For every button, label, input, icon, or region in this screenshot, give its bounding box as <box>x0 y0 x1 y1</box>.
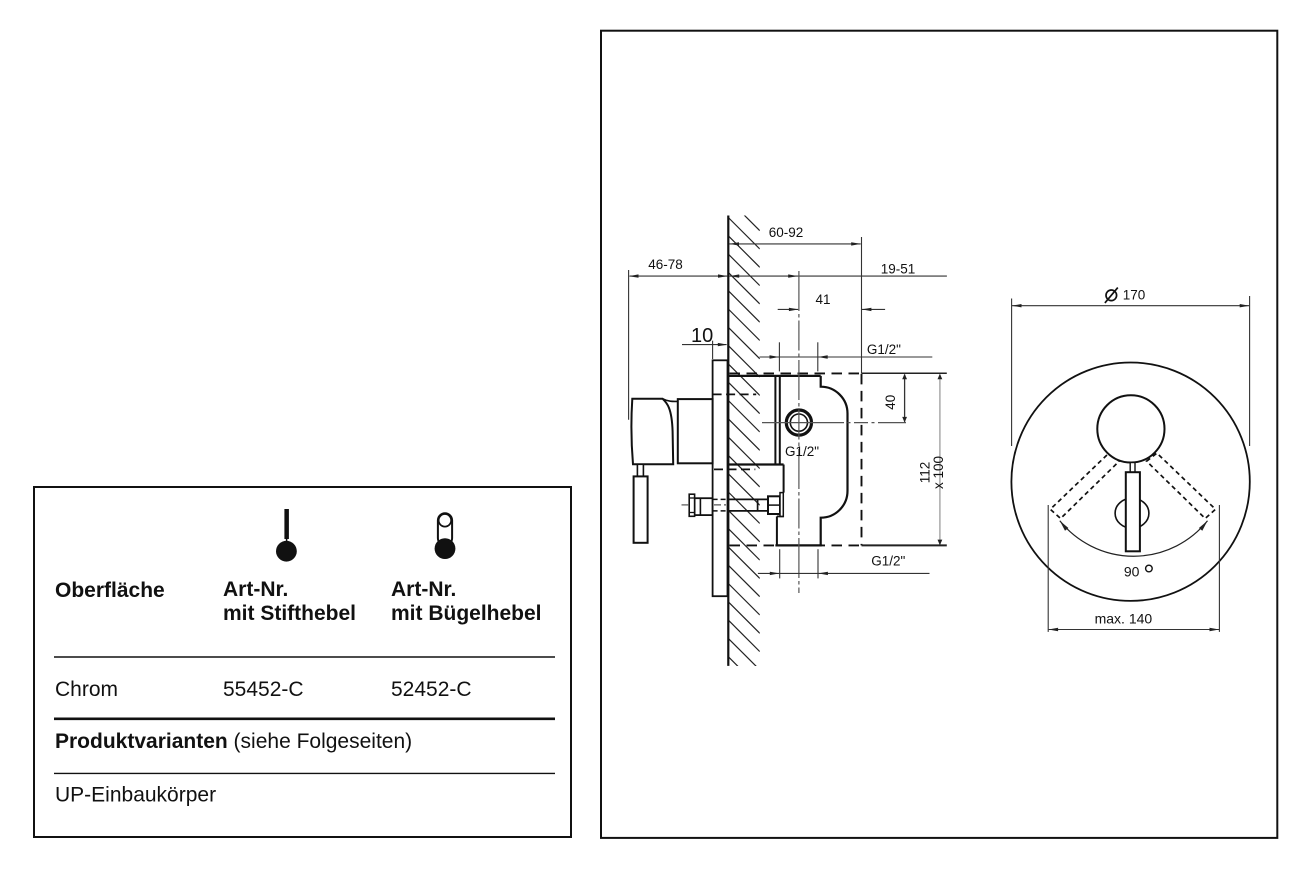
svg-text:G1/2": G1/2" <box>871 554 905 569</box>
svg-text:Art-Nr.: Art-Nr. <box>223 578 288 601</box>
svg-text:mit Stifthebel: mit Stifthebel <box>223 602 356 625</box>
svg-text:Art-Nr.: Art-Nr. <box>391 578 456 601</box>
svg-text:170: 170 <box>1123 288 1146 303</box>
svg-text:Chrom: Chrom <box>55 678 118 701</box>
svg-text:Oberfläche: Oberfläche <box>55 579 165 602</box>
svg-text:52452-C: 52452-C <box>391 678 472 701</box>
svg-text:UP-Einbaukörper: UP-Einbaukörper <box>55 784 216 807</box>
svg-text:46-78: 46-78 <box>648 257 683 272</box>
svg-text:max. 140: max. 140 <box>1095 611 1153 627</box>
svg-text:mit Bügelhebel: mit Bügelhebel <box>391 602 542 625</box>
svg-text:90: 90 <box>1124 563 1140 579</box>
svg-text:Produktvarianten (siehe Folges: Produktvarianten (siehe Folgeseiten) <box>55 730 412 753</box>
svg-text:55452-C: 55452-C <box>223 678 304 701</box>
svg-text:10: 10 <box>691 325 713 347</box>
svg-text:x 100: x 100 <box>931 456 946 489</box>
svg-text:60-92: 60-92 <box>769 225 804 240</box>
svg-text:41: 41 <box>815 292 830 307</box>
svg-text:G1/2": G1/2" <box>867 342 901 357</box>
svg-text:19-51: 19-51 <box>881 262 916 277</box>
svg-text:G1/2": G1/2" <box>785 444 819 459</box>
svg-text:40: 40 <box>883 395 898 410</box>
